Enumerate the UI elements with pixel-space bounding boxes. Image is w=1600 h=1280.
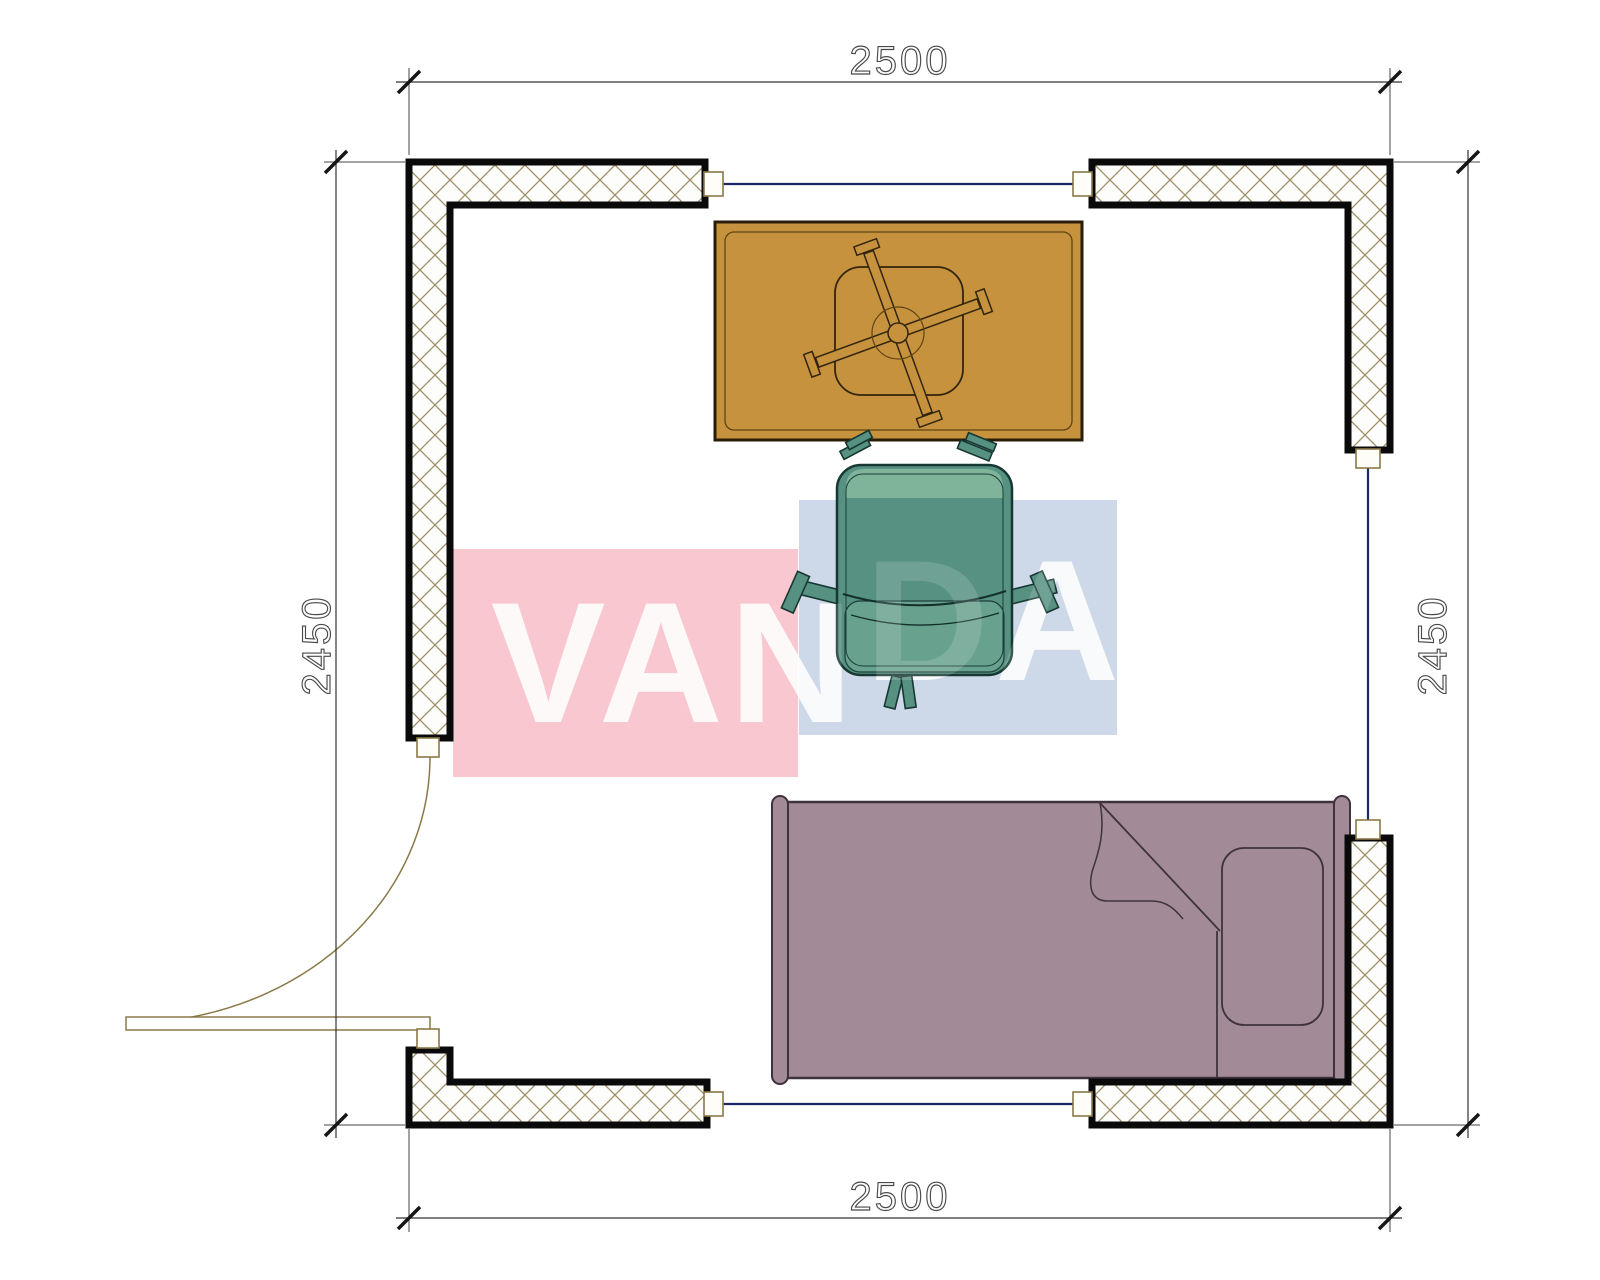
floor-plan-drawing: VAN DA (0, 0, 1600, 1280)
window-frame (1356, 449, 1380, 468)
dimension-label-left: 2450 (295, 595, 339, 696)
dimension-label-right: 2450 (1411, 595, 1455, 696)
window-frame (1073, 1092, 1092, 1116)
window-frame (1073, 172, 1092, 196)
door-frame (417, 1029, 439, 1048)
floor-plan-canvas: VAN DA (0, 0, 1600, 1280)
window-frame (1356, 820, 1380, 839)
dimension-label-top: 2500 (850, 39, 951, 83)
desk (715, 222, 1082, 440)
bed-headboard (772, 796, 788, 1084)
window-frame (704, 172, 723, 196)
bed-body (780, 802, 1340, 1078)
chair-top-band (846, 469, 1003, 498)
door-frame (417, 738, 439, 757)
dimension-label-bottom: 2500 (850, 1175, 951, 1219)
watermark-overlay-van: VAN (491, 567, 859, 759)
door-leaf (126, 1017, 430, 1030)
bed (772, 796, 1350, 1084)
watermark-overlay-da: DA (865, 525, 1125, 717)
window-frame (704, 1092, 723, 1116)
star-base-hub (888, 323, 908, 343)
